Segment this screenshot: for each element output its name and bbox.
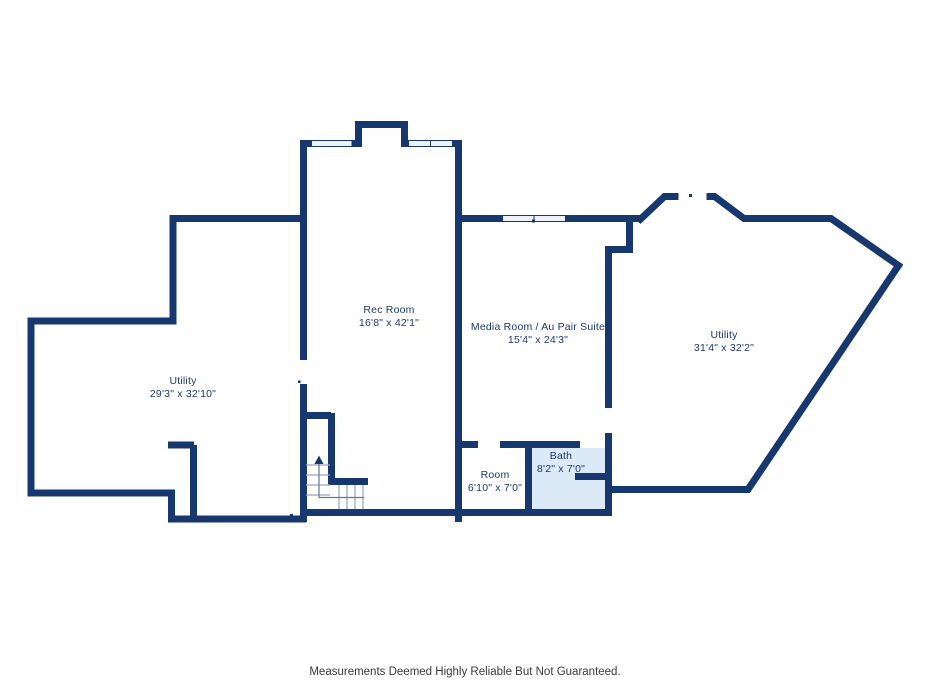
room-dims: 29'3" x 32'10": [150, 388, 216, 401]
walls: [31, 125, 899, 523]
tick-media-right-wall: [606, 266, 609, 269]
room-dims: 31'4" x 32'2": [694, 342, 754, 355]
tick-bay-top: [382, 125, 385, 128]
wall-stairwell: [303, 413, 368, 485]
room-name: Utility: [694, 329, 754, 342]
room-name: Rec Room: [359, 304, 419, 317]
tick-bottom-wall: [290, 514, 293, 517]
disclaimer-text: Measurements Deemed Highly Reliable But …: [0, 666, 930, 678]
room-name: Room: [468, 469, 522, 482]
stair-direction-arrow-icon: [315, 456, 324, 465]
tick-rec-left-door: [298, 381, 301, 384]
wall-left-utility-outline: [31, 219, 306, 520]
room-label-utility-left: Utility 29'3" x 32'10": [150, 375, 216, 401]
wall-right-utility-outline: [610, 197, 899, 490]
room-label-media-room: Media Room / Au Pair Suite 15'4" x 24'3": [471, 321, 605, 347]
room-dims: 15'4" x 24'3": [471, 334, 605, 347]
floor-plan-page: Rec Room 16'8" x 42'1" Media Room / Au P…: [0, 0, 930, 697]
window-rec-left: [312, 141, 353, 147]
tick-media-window: [532, 220, 535, 223]
room-label-rec-room: Rec Room 16'8" x 42'1": [359, 304, 419, 330]
room-dims: 16'8" x 42'1": [359, 317, 419, 330]
stair-treads-horizontal: [306, 465, 330, 495]
room-name: Media Room / Au Pair Suite: [471, 321, 605, 334]
windows: [312, 141, 566, 222]
room-name: Utility: [150, 375, 216, 388]
tick-door-top: [689, 194, 692, 197]
room-label-utility-right: Utility 31'4" x 32'2": [694, 329, 754, 355]
room-label-bath: Bath 8'2" x 7'0": [537, 450, 585, 476]
wall-right-utility-top-left: [638, 197, 679, 222]
room-dims: 6'10" x 7'0": [468, 482, 522, 495]
room-dims: 8'2" x 7'0": [537, 463, 585, 476]
floor-plan-drawing: [0, 0, 930, 697]
room-name: Bath: [537, 450, 585, 463]
room-label-room: Room 6'10" x 7'0": [468, 469, 522, 495]
